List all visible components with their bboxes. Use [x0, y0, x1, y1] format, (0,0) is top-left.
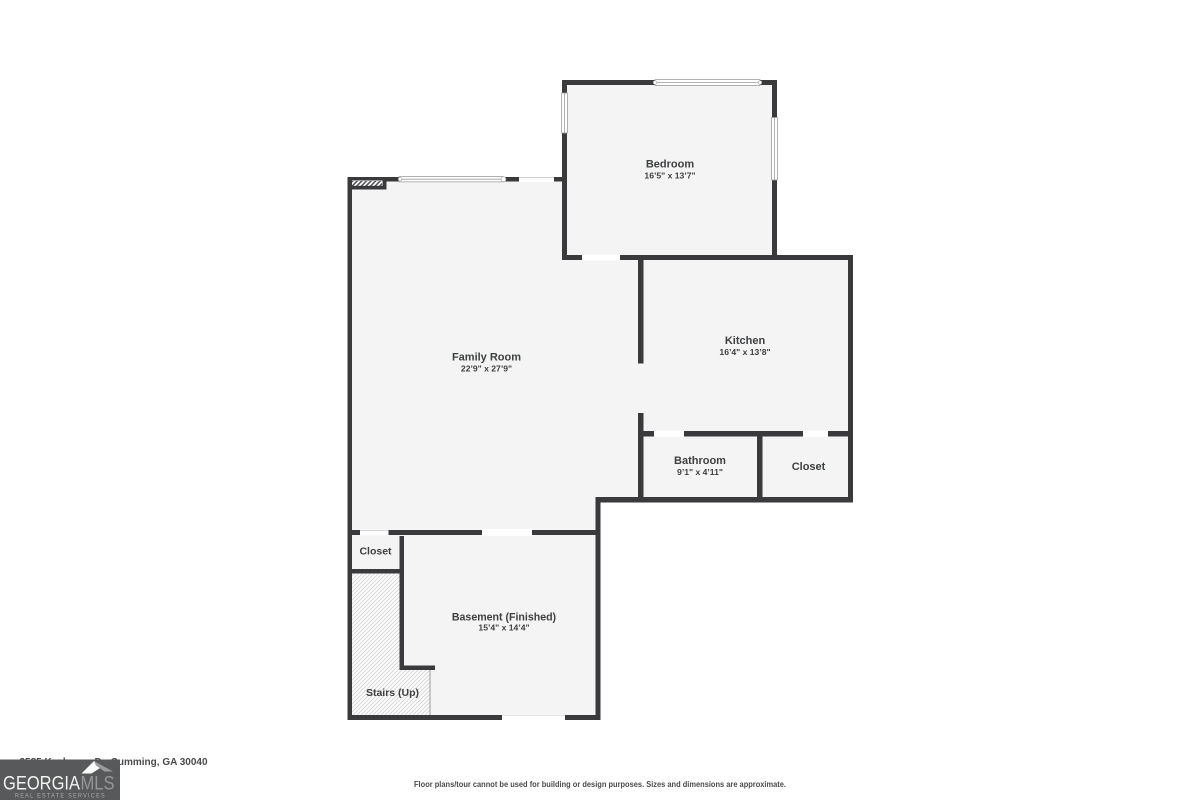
svg-text:Family Room: Family Room	[452, 352, 521, 364]
svg-text:Kitchen: Kitchen	[725, 335, 766, 347]
svg-text:22’9" x 27’9": 22’9" x 27’9"	[461, 364, 512, 374]
svg-text:Floor plans/tour cannot be use: Floor plans/tour cannot be used for buil…	[414, 780, 786, 789]
svg-text:16’4" x 13’8": 16’4" x 13’8"	[719, 347, 770, 357]
svg-text:Closet: Closet	[792, 461, 826, 473]
svg-text:REAL ESTATE SERVICES: REAL ESTATE SERVICES	[15, 793, 106, 800]
svg-text:Bathroom: Bathroom	[674, 455, 726, 467]
svg-text:Bedroom: Bedroom	[646, 159, 695, 171]
svg-text:9’1" x 4’11": 9’1" x 4’11"	[677, 467, 723, 477]
svg-text:Stairs (Up): Stairs (Up)	[366, 687, 419, 699]
svg-text:15’4" x 14’4": 15’4" x 14’4"	[478, 623, 529, 633]
svg-text:Closet: Closet	[359, 546, 392, 558]
svg-text:MLS: MLS	[81, 773, 115, 795]
svg-text:16’5" x 13’7": 16’5" x 13’7"	[644, 171, 695, 181]
svg-text:GEORGIA: GEORGIA	[3, 773, 80, 795]
